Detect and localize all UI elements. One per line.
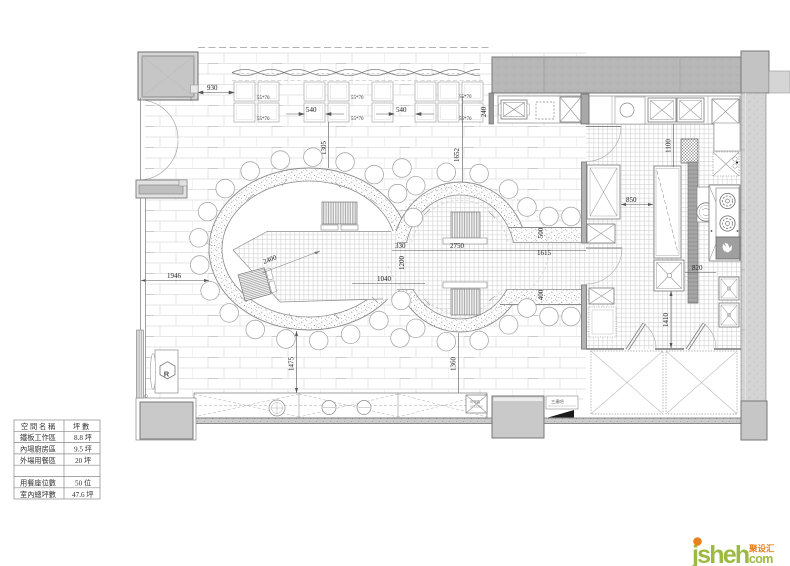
svg-text:.com: .com	[746, 552, 773, 566]
svg-text:500: 500	[537, 227, 545, 238]
svg-text:內場廚房區: 內場廚房區	[20, 445, 56, 454]
svg-text:1040: 1040	[377, 275, 392, 283]
svg-text:室內總坪數: 室內總坪數	[20, 490, 56, 499]
svg-text:55*70: 55*70	[459, 95, 472, 100]
svg-text:540: 540	[306, 106, 317, 114]
svg-text:400: 400	[537, 289, 545, 300]
svg-text:1410: 1410	[662, 313, 670, 328]
svg-text:55*70: 55*70	[257, 117, 270, 122]
svg-text:55*70: 55*70	[351, 96, 364, 101]
svg-text:聚设汇: 聚设汇	[748, 544, 775, 554]
svg-text:外場用餐區: 外場用餐區	[20, 456, 56, 465]
svg-text:空 間 名 稱: 空 間 名 稱	[21, 422, 55, 431]
svg-text:1360: 1360	[450, 357, 458, 372]
svg-text:1100: 1100	[665, 139, 673, 153]
svg-text:930: 930	[207, 84, 218, 92]
svg-text:50 位: 50 位	[75, 479, 91, 488]
svg-text:1200: 1200	[398, 256, 406, 271]
svg-text:1615: 1615	[537, 249, 552, 257]
svg-text:55*70: 55*70	[257, 96, 270, 101]
svg-text:55*70: 55*70	[351, 117, 364, 122]
svg-text:STUDIO: STUDIO	[470, 405, 483, 409]
svg-text:可彎曲: 可彎曲	[470, 399, 481, 404]
svg-text:55*70: 55*70	[459, 117, 472, 122]
svg-text:1946: 1946	[167, 272, 182, 280]
svg-text:用餐座位數: 用餐座位數	[20, 479, 56, 488]
svg-text:2750: 2750	[450, 242, 465, 250]
svg-text:540: 540	[396, 106, 407, 114]
svg-text:1475: 1475	[288, 357, 296, 372]
svg-text:820: 820	[692, 264, 703, 272]
svg-text:850: 850	[626, 196, 637, 204]
svg-text:鐵板工作區: 鐵板工作區	[20, 433, 56, 442]
svg-text:R: R	[164, 370, 170, 379]
svg-text:9.5 坪: 9.5 坪	[74, 446, 92, 454]
svg-text:20 坪: 20 坪	[75, 457, 91, 465]
svg-text:240: 240	[480, 106, 488, 117]
svg-text:47.6 坪: 47.6 坪	[72, 491, 94, 499]
svg-text:坪 數: 坪 數	[73, 422, 89, 431]
svg-text:8.8 坪: 8.8 坪	[74, 434, 92, 442]
svg-text:330: 330	[395, 242, 406, 250]
svg-text:1652: 1652	[453, 148, 461, 163]
svg-text:三連吧: 三連吧	[551, 398, 564, 405]
